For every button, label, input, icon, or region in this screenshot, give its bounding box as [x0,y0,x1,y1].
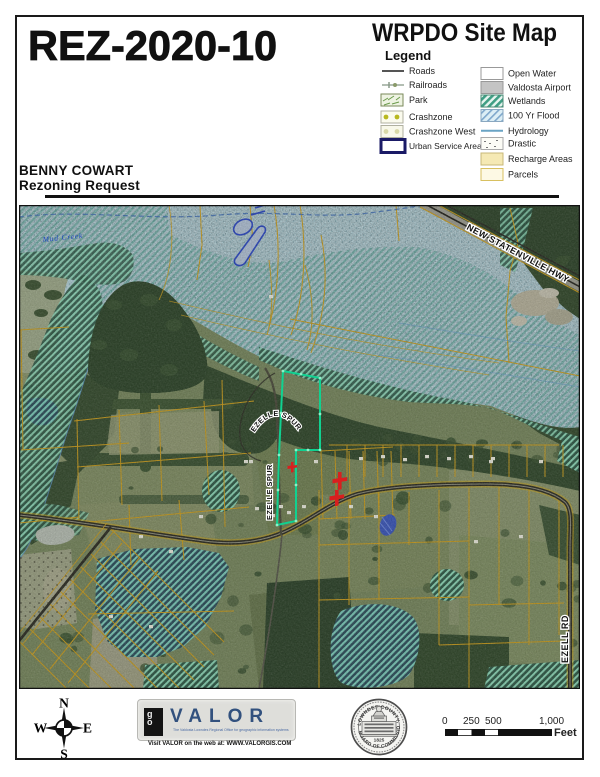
svg-text:Urban Service Area: Urban Service Area [409,141,482,151]
svg-text:Drastic: Drastic [508,139,537,149]
svg-text:EZELL RD: EZELL RD [560,615,570,663]
svg-text:Crashzone West: Crashzone West [409,127,476,137]
svg-text:100 Yr Flood: 100 Yr Flood [508,111,559,121]
svg-text:Hydrology: Hydrology [508,126,549,136]
svg-text:1825: 1825 [374,738,385,744]
svg-text:Valdosta Airport: Valdosta Airport [508,83,571,93]
svg-text:Crashzone: Crashzone [409,112,453,122]
svg-text:Parcels: Parcels [508,170,539,180]
svg-text:Railroads: Railroads [409,80,448,90]
svg-text:EZELLE SPUR: EZELLE SPUR [265,464,274,520]
svg-text:S: S [60,747,68,762]
svg-text:Wetlands: Wetlands [508,96,546,106]
svg-text:Recharge Areas: Recharge Areas [508,154,573,164]
svg-text:Open Water: Open Water [508,69,556,79]
svg-text:Roads: Roads [409,66,436,76]
svg-text:E: E [83,721,92,736]
svg-text:Park: Park [409,95,428,105]
